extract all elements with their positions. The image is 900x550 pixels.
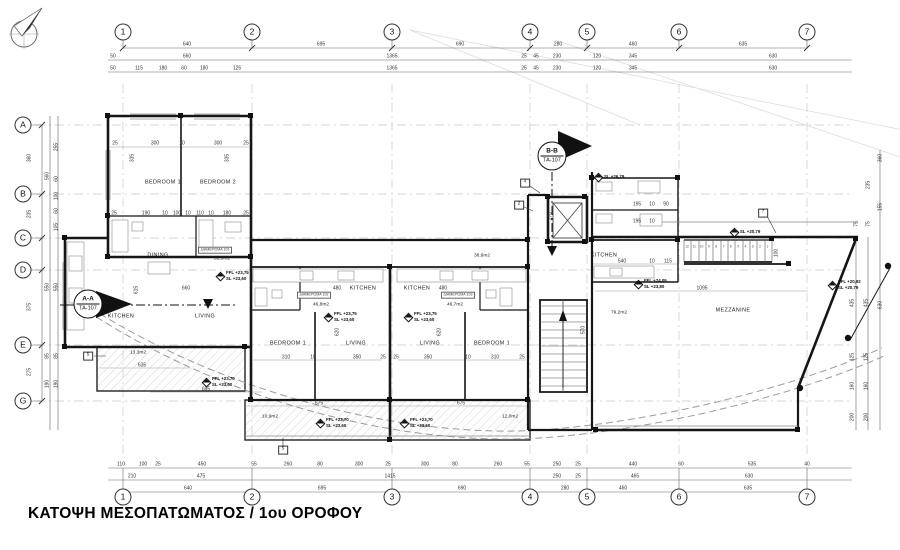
dimension-label: 540 xyxy=(618,260,626,265)
dimension-label: 615 xyxy=(135,286,140,294)
grid-bubble-top-1: 1 xyxy=(115,24,132,41)
reference-box: 5 xyxy=(83,352,93,361)
dimension-label: 195 xyxy=(633,203,641,208)
stair-tread-number: 4 xyxy=(745,245,747,248)
dimension-label: 310 xyxy=(491,356,499,361)
area-label: 13,3m2 xyxy=(130,352,146,357)
dimension-label: 25 xyxy=(521,67,527,72)
dimension-label: 435 xyxy=(851,299,856,307)
dimension-label: 25 xyxy=(393,356,399,361)
level-marker: SL +26,79 xyxy=(604,174,624,180)
dimension-label: 640 xyxy=(183,43,191,48)
dimension-label: 335 xyxy=(226,154,231,162)
dimension-label: 350 xyxy=(424,356,432,361)
stair-tread-number: 10 xyxy=(700,245,704,248)
grid-bubble-left-D: D xyxy=(15,262,32,279)
dimension-label: 275 xyxy=(28,368,33,376)
level-marker: FFL +23,70SL +23,60 xyxy=(326,417,349,429)
dimension-label: 125 xyxy=(865,353,870,361)
grid-bubble-bottom-3: 3 xyxy=(384,489,401,506)
dimension-label: 560 xyxy=(46,172,51,180)
dimension-label: 635 xyxy=(138,364,146,369)
dimension-label: 280 xyxy=(561,487,569,492)
level-icon xyxy=(404,313,414,323)
dimension-label: 345 xyxy=(629,67,637,72)
dimension-label: 115 xyxy=(664,260,672,265)
dimension-label: 635 xyxy=(744,487,752,492)
labels-layer: 6406956902804606355066013652545230120345… xyxy=(0,0,900,550)
dimension-label: 620 xyxy=(336,328,341,336)
dimension-label: 25 xyxy=(519,356,525,361)
level-icon xyxy=(634,280,644,290)
stair-tread-number: 9 xyxy=(708,245,710,248)
dimension-label: 1415 xyxy=(384,475,395,480)
grid-bubble-left-A: A xyxy=(15,117,32,134)
dimension-label: 675 xyxy=(315,402,323,407)
stair-tread-number: 6 xyxy=(730,245,732,248)
dimension-label: 55 xyxy=(251,463,257,468)
dimension-label: 210 xyxy=(128,475,136,480)
dimension-label: 465 xyxy=(631,475,639,480)
level-marker: FFL +24,05SL +23,80 xyxy=(644,278,667,290)
dimension-label: 100 xyxy=(139,463,147,468)
dimension-label: 475 xyxy=(197,475,205,480)
grid-bubble-top-3: 3 xyxy=(384,24,401,41)
dimension-label: 190 xyxy=(55,380,60,388)
area-label: 81,0m2 xyxy=(214,258,230,263)
dimension-label: 695 xyxy=(202,388,210,393)
dimension-label: 260 xyxy=(284,463,292,468)
dimension-label: 115 xyxy=(135,67,143,72)
dimension-label: 630 xyxy=(769,67,777,72)
dimension-label: 120 xyxy=(593,67,601,72)
dimension-label: 180 xyxy=(200,67,208,72)
dimension-label: 230 xyxy=(553,67,561,72)
dimension-label: 660 xyxy=(183,55,191,60)
dimension-label: 200 xyxy=(865,413,870,421)
level-icon xyxy=(216,272,226,282)
dimension-label: 25 xyxy=(155,463,161,468)
dimension-label: 335 xyxy=(131,154,136,162)
level-marker: FFL +23,75SL +23,60 xyxy=(334,311,357,323)
dimension-label: 300 xyxy=(151,142,159,147)
dimension-label: 80 xyxy=(452,463,458,468)
dimension-label: 660 xyxy=(182,287,190,292)
stair-tread-number: 11 xyxy=(693,245,696,248)
dimension-label: 50 xyxy=(110,67,116,72)
dimension-label: 25 xyxy=(380,356,386,361)
room-label: KITCHEN xyxy=(591,253,617,258)
level-icon xyxy=(316,419,326,429)
dimension-label: 345 xyxy=(629,55,637,60)
dimension-label: 460 xyxy=(629,43,637,48)
level-icon xyxy=(400,419,410,429)
dimension-label: 460 xyxy=(619,487,627,492)
dimension-label: 190 xyxy=(142,212,150,217)
room-label: KITCHEN xyxy=(404,286,430,291)
reference-box: 5 xyxy=(278,446,288,455)
stair-tread-number: 2 xyxy=(759,245,761,248)
section-marker-aa: A-AΤΑ-107 xyxy=(74,290,103,319)
dimension-label: 550 xyxy=(46,283,51,291)
grid-bubble-top-6: 6 xyxy=(671,24,688,41)
level-icon xyxy=(828,281,838,291)
dimension-label: 270 xyxy=(549,212,554,220)
dimension-label: 675 xyxy=(457,402,465,407)
grid-bubble-bottom-7: 7 xyxy=(799,489,816,506)
dimension-label: 480 xyxy=(333,287,341,292)
dimension-label: 255 xyxy=(55,143,60,151)
floorplan-sheet: 6406956902804606355066013652545230120345… xyxy=(0,0,900,550)
dimension-label: 635 xyxy=(739,43,747,48)
dimension-label: 630 xyxy=(745,475,753,480)
dimension-label: 640 xyxy=(184,487,192,492)
dimension-label: 450 xyxy=(198,463,206,468)
room-label: DINING xyxy=(147,253,168,258)
dimension-label: 85 xyxy=(46,353,51,359)
room-label: LIVING xyxy=(346,341,366,346)
dimension-label: 690 xyxy=(456,43,464,48)
dimension-label: 10 xyxy=(185,212,191,217)
reference-box: 4 xyxy=(520,179,530,188)
dimension-label: 695 xyxy=(317,43,325,48)
dimension-label: 50 xyxy=(110,55,116,60)
dimension-label: 195 xyxy=(633,220,641,225)
dimension-label: 360 xyxy=(28,154,33,162)
level-marker: FFL +20,92SL +20,79 xyxy=(838,279,861,291)
dimension-label: 310 xyxy=(282,356,290,361)
dimension-label: 180 xyxy=(223,212,231,217)
area-label: 38,6m2 xyxy=(474,255,490,260)
stair-tread-number: 5 xyxy=(737,245,739,248)
dimension-label: 570 xyxy=(582,326,587,334)
dimension-label: 180 xyxy=(159,67,167,72)
level-marker: FFL +23,70SL +23,60 xyxy=(212,376,235,388)
room-label: LIVING xyxy=(195,314,215,319)
dimension-label: 250 xyxy=(553,475,561,480)
dimension-label: 10 xyxy=(179,142,185,147)
grid-bubble-left-G: G xyxy=(15,393,32,410)
area-label: 10,9m2 xyxy=(262,416,278,421)
grid-bubble-bottom-4: 4 xyxy=(522,489,539,506)
dimension-label: 235 xyxy=(28,210,33,218)
dimension-label: 10 xyxy=(208,212,214,217)
stair-tread-number: 8 xyxy=(715,245,717,248)
area-label: 79,2m2 xyxy=(611,312,627,317)
dimension-label: 550 xyxy=(55,283,60,291)
dimension-label: 230 xyxy=(553,55,561,60)
dimension-label: 110 xyxy=(196,212,204,217)
grid-bubble-left-E: E xyxy=(15,337,32,354)
dimension-label: 25 xyxy=(521,55,527,60)
reference-box: 2 xyxy=(514,201,524,210)
dimension-label: 25 xyxy=(575,475,581,480)
dimension-label: 10 xyxy=(310,356,316,361)
dimension-label: 125 xyxy=(851,353,856,361)
dimension-label: 90 xyxy=(663,203,669,208)
dimension-label: 10 xyxy=(649,220,655,225)
level-marker: SL +20,79 xyxy=(740,229,760,235)
dimension-label: 535 xyxy=(748,463,756,468)
stair-tread-number: 7 xyxy=(723,245,725,248)
dimension-label: 1365 xyxy=(386,55,397,60)
area-label: 46,7m2 xyxy=(447,304,463,309)
dimension-label: 350 xyxy=(353,356,361,361)
dimension-label: 45 xyxy=(533,67,539,72)
level-marker: FFL +23,70SL +23,60 xyxy=(410,417,433,429)
dimension-label: 120 xyxy=(593,55,601,60)
dimension-label: 75 xyxy=(855,221,860,227)
reference-box: 7 xyxy=(758,209,768,218)
dimension-label: 110 xyxy=(117,463,125,468)
dimension-label: 630 xyxy=(879,301,884,309)
dimension-label: 75 xyxy=(867,221,872,227)
dimension-label: 440 xyxy=(629,463,637,468)
dimension-label: 125 xyxy=(233,67,241,72)
room-label: BEDROOM 1 xyxy=(145,180,181,185)
dimension-label: 300 xyxy=(355,463,363,468)
dimension-label: 630 xyxy=(769,55,777,60)
grid-bubble-top-4: 4 xyxy=(522,24,539,41)
grid-bubble-top-5: 5 xyxy=(579,24,596,41)
grid-bubble-left-B: B xyxy=(15,186,32,203)
dimension-label: 1095 xyxy=(696,287,707,292)
dimension-label: 10 xyxy=(162,212,168,217)
apartment-label: ΔΙΑΜΕΡΙΣΜΑ 103 xyxy=(441,292,475,299)
room-label: KITCHEN xyxy=(350,286,376,291)
stair-tread-number: 1 xyxy=(766,245,768,248)
grid-bubble-bottom-1: 1 xyxy=(115,489,132,506)
room-label: KITCHEN xyxy=(108,314,134,319)
dimension-label: 25 xyxy=(385,463,391,468)
section-marker-bb: B-BΤΑ-107 xyxy=(538,142,567,171)
level-marker: FFL +23,75SL +23,60 xyxy=(414,311,437,323)
grid-bubble-top-7: 7 xyxy=(799,24,816,41)
dimension-label: 100 xyxy=(775,249,780,257)
dimension-label: 10 xyxy=(649,203,655,208)
dimension-label: 40 xyxy=(804,463,810,468)
stair-tread-number: 12 xyxy=(685,245,689,248)
apartment-label: ΔΙΑΜΕΡΙΣΜΑ 102 xyxy=(297,292,331,299)
dimension-label: 235 xyxy=(867,181,872,189)
dimension-label: 60 xyxy=(181,67,187,72)
dimension-label: 10 xyxy=(649,260,655,265)
level-marker: FFL +23,75SL +23,60 xyxy=(226,270,249,282)
room-label: MEZZANINE xyxy=(716,308,751,313)
room-label: BEDROOM 1 xyxy=(474,341,510,346)
area-label: 46,8m2 xyxy=(313,304,329,309)
dimension-label: 1365 xyxy=(386,67,397,72)
dimension-label: 160 xyxy=(865,382,870,390)
dimension-label: 620 xyxy=(438,328,443,336)
dimension-label: 435 xyxy=(865,299,870,307)
dimension-label: 25 xyxy=(243,212,249,217)
room-label: LIVING xyxy=(420,341,440,346)
dimension-label: 190 xyxy=(46,380,51,388)
level-icon xyxy=(730,228,740,238)
dimension-label: 10 xyxy=(465,356,471,361)
area-label: 12,0m2 xyxy=(502,416,518,421)
dimension-label: 45 xyxy=(533,55,539,60)
dimension-label: 100 xyxy=(173,212,181,217)
level-icon xyxy=(324,313,334,323)
room-label: BEDROOM 1 xyxy=(270,341,306,346)
dimension-label: 300 xyxy=(214,142,222,147)
grid-bubble-bottom-6: 6 xyxy=(671,489,688,506)
dimension-label: 100 xyxy=(55,192,60,200)
dimension-label: 160 xyxy=(851,382,856,390)
room-label: BEDROOM 2 xyxy=(200,180,236,185)
dimension-label: 105 xyxy=(55,223,60,231)
dimension-label: 60 xyxy=(678,463,684,468)
grid-bubble-bottom-2: 2 xyxy=(244,489,261,506)
grid-bubble-left-C: C xyxy=(15,230,32,247)
stair-tread-number: 3 xyxy=(752,245,754,248)
grid-bubble-top-2: 2 xyxy=(244,24,261,41)
dimension-label: 260 xyxy=(494,463,502,468)
dimension-label: 80 xyxy=(317,463,323,468)
dimension-label: 690 xyxy=(458,487,466,492)
dimension-label: 695 xyxy=(318,487,326,492)
dimension-label: 25 xyxy=(111,212,117,217)
dimension-label: 155 xyxy=(879,203,884,211)
dimension-label: 360 xyxy=(879,154,884,162)
dimension-label: 250 xyxy=(553,463,561,468)
dimension-label: 60 xyxy=(55,208,60,214)
drawing-title: ΚΑΤΟΨΗ ΜΕΣΟΠΑΤΩΜΑΤΟΣ / 1ου ΟΡΟΦΟΥ xyxy=(28,505,362,523)
dimension-label: 300 xyxy=(421,463,429,468)
level-icon xyxy=(594,173,604,183)
apartment-label: ΔΙΑΜΕΡΙΣΜΑ 101 xyxy=(198,247,232,254)
dimension-label: 55 xyxy=(524,463,530,468)
dimension-label: 280 xyxy=(554,43,562,48)
grid-bubble-bottom-5: 5 xyxy=(579,489,596,506)
dimension-label: 25 xyxy=(112,142,118,147)
dimension-label: 375 xyxy=(28,303,33,311)
dimension-label: 200 xyxy=(851,413,856,421)
dimension-label: 25 xyxy=(243,142,249,147)
dimension-label: 85 xyxy=(55,353,60,359)
dimension-label: 60 xyxy=(55,176,60,182)
dimension-label: 25 xyxy=(575,463,581,468)
